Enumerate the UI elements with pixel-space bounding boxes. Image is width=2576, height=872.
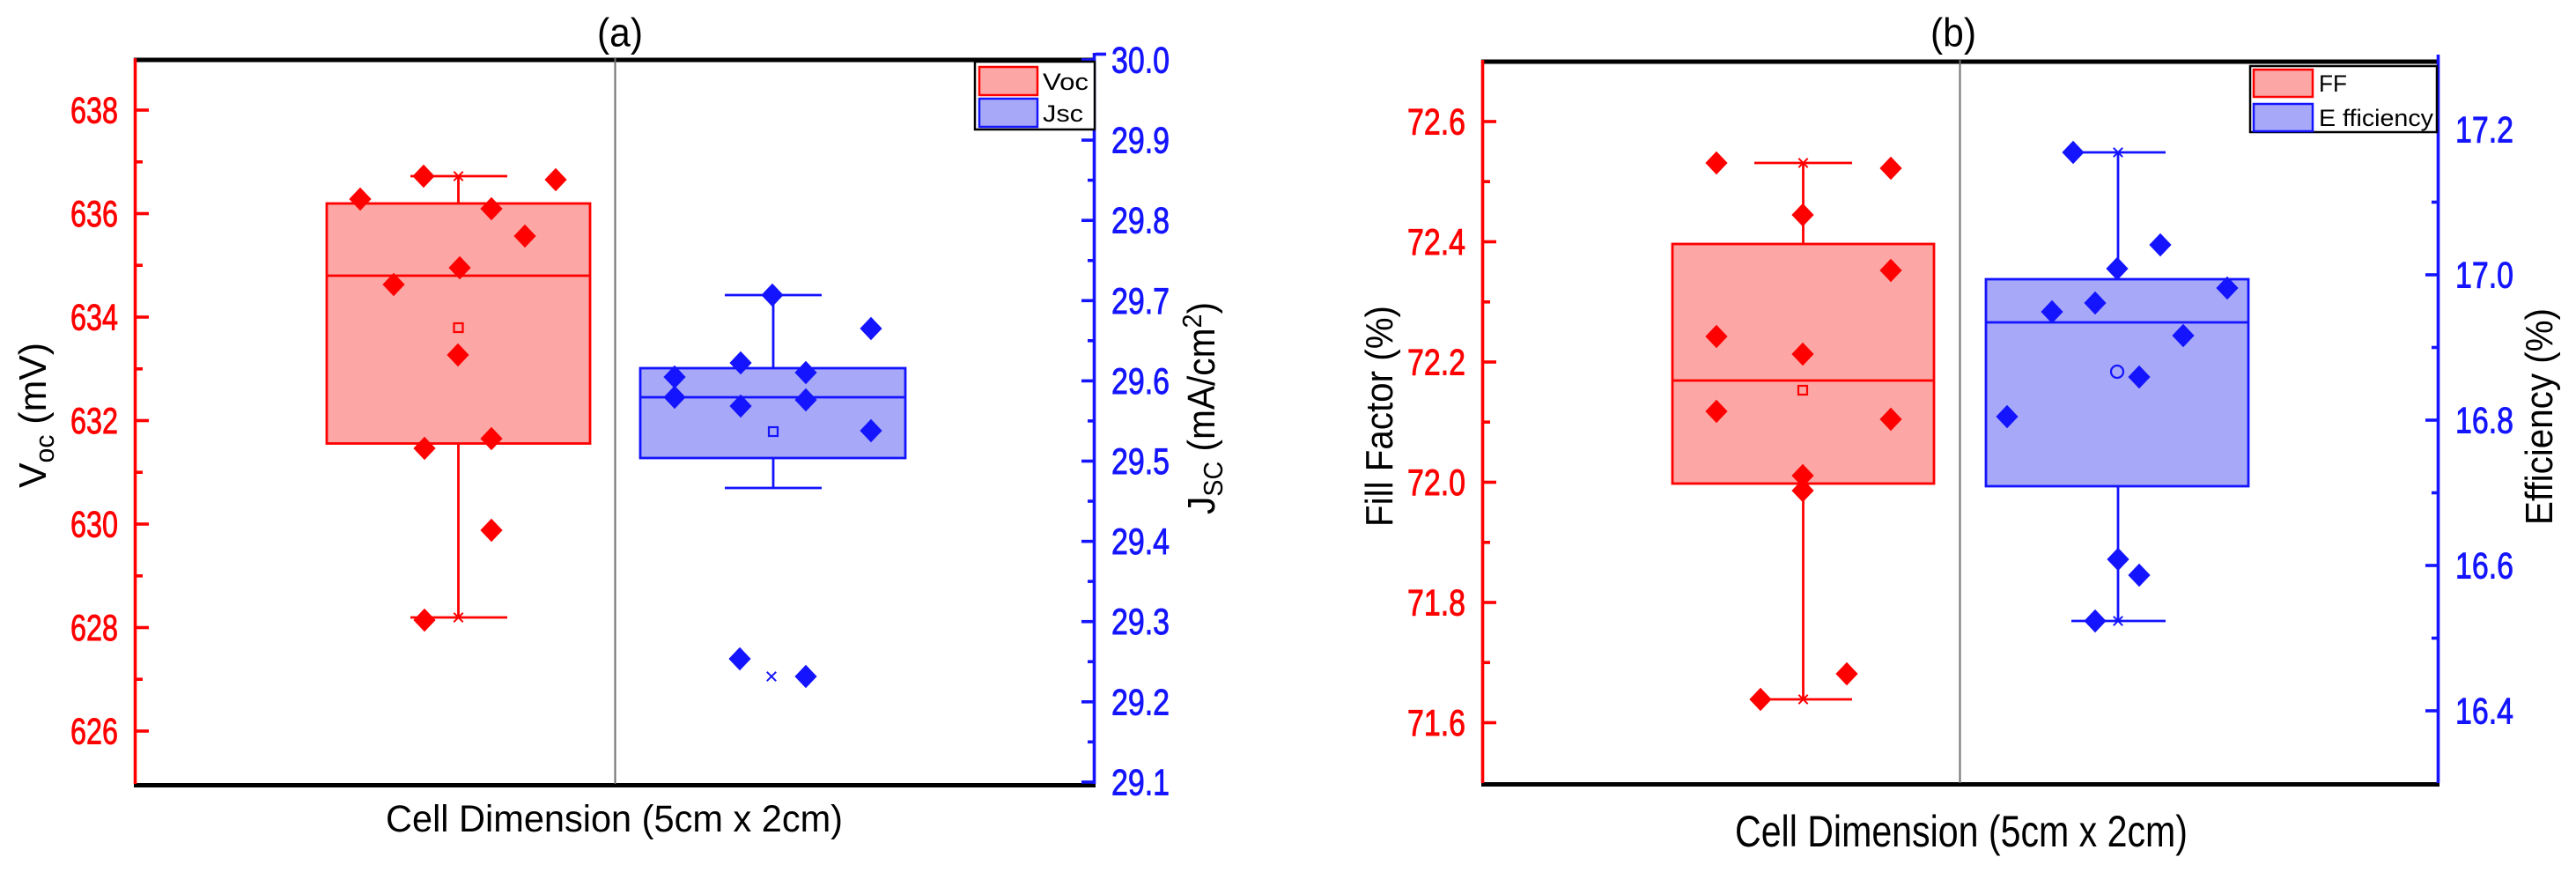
svg-text:17.2: 17.2	[2455, 109, 2513, 151]
svg-text:Efficiency (%): Efficiency (%)	[2518, 308, 2561, 525]
svg-text:FF: FF	[2319, 70, 2347, 97]
svg-text:71.6: 71.6	[1407, 702, 1465, 743]
svg-text:30.0: 30.0	[1111, 40, 1170, 81]
svg-text:Jsc: Jsc	[1043, 100, 1083, 127]
svg-text:29.5: 29.5	[1111, 440, 1170, 482]
svg-text:632: 632	[70, 400, 118, 441]
svg-text:(b): (b)	[1930, 11, 1976, 55]
svg-text:29.8: 29.8	[1111, 200, 1170, 241]
svg-text:72.0: 72.0	[1407, 462, 1465, 503]
svg-text:Cell Dimension (5cm x 2cm): Cell Dimension (5cm x 2cm)	[1735, 807, 2188, 856]
svg-text:17.0: 17.0	[2455, 255, 2513, 296]
svg-text:72.2: 72.2	[1407, 342, 1465, 383]
svg-text:29.7: 29.7	[1111, 280, 1170, 321]
svg-text:Cell Dimension (5cm x 2cm): Cell Dimension (5cm x 2cm)	[386, 798, 843, 840]
svg-text:72.4: 72.4	[1407, 221, 1465, 262]
svg-text:630: 630	[70, 504, 118, 545]
svg-text:16.6: 16.6	[2455, 545, 2513, 587]
svg-text:628: 628	[70, 607, 118, 648]
svg-text:634: 634	[70, 297, 118, 338]
svg-text:29.1: 29.1	[1111, 761, 1170, 802]
svg-text:16.8: 16.8	[2455, 400, 2513, 441]
svg-text:29.6: 29.6	[1111, 360, 1170, 402]
svg-text:29.9: 29.9	[1111, 120, 1170, 161]
svg-text:(a): (a)	[597, 11, 643, 55]
svg-text:Fill Factor (%): Fill Factor (%)	[1358, 306, 1401, 527]
svg-text:626: 626	[70, 711, 118, 752]
svg-text:636: 636	[70, 193, 118, 234]
svg-text:Voc (mV): Voc (mV)	[11, 343, 60, 488]
svg-text:E fficiency: E fficiency	[2319, 105, 2434, 131]
svg-text:72.6: 72.6	[1407, 101, 1465, 143]
svg-text:16.4: 16.4	[2455, 691, 2513, 732]
svg-text:638: 638	[70, 90, 118, 131]
svg-text:29.4: 29.4	[1111, 521, 1170, 562]
svg-text:Voc: Voc	[1043, 69, 1089, 95]
svg-text:71.8: 71.8	[1407, 582, 1465, 624]
svg-text:29.3: 29.3	[1111, 601, 1170, 642]
svg-text:29.2: 29.2	[1111, 681, 1170, 722]
